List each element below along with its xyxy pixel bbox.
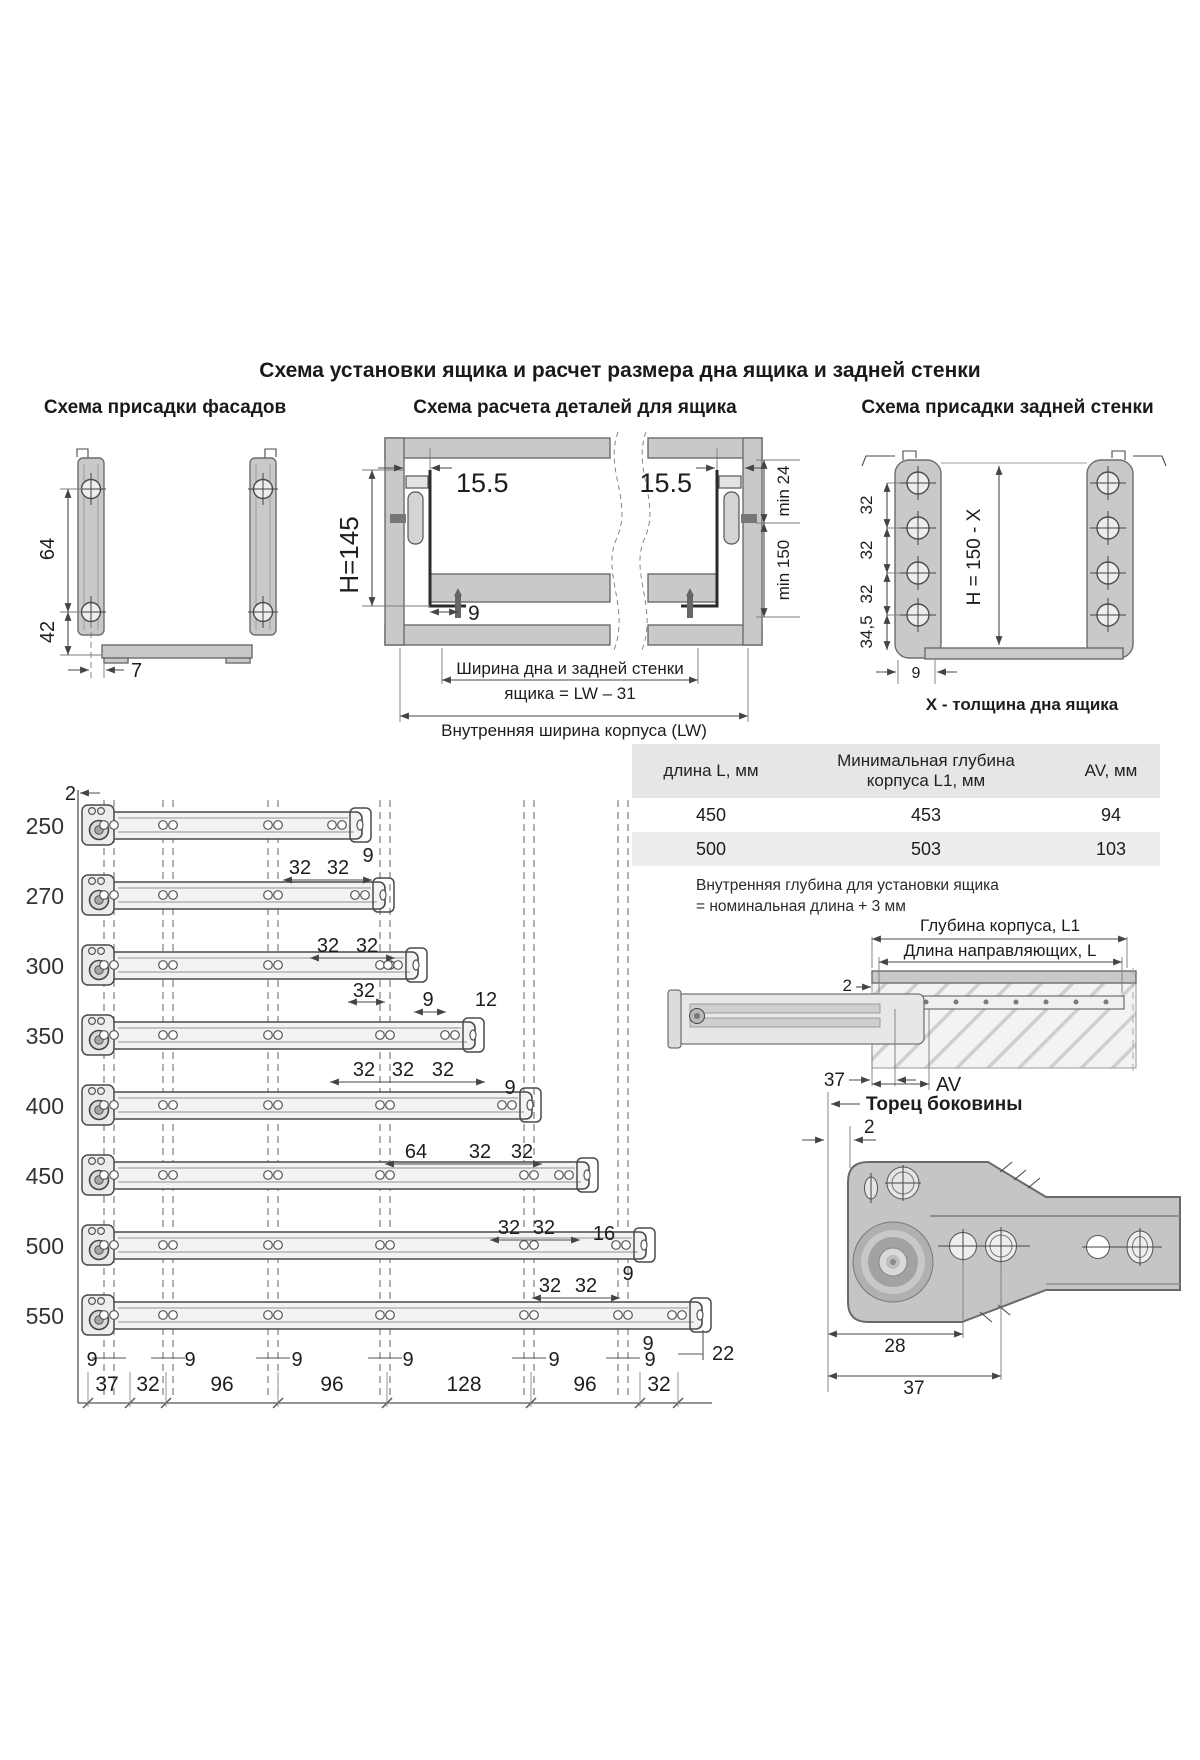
facade-diagram: 64 42 7	[37, 449, 278, 682]
dim-label-37: 37	[903, 1378, 924, 1399]
rail-length-label: 300	[26, 953, 64, 979]
dim-label-2: 2	[65, 783, 76, 805]
bottom-dim-label: 128	[446, 1373, 481, 1396]
hole-pitch-label: 9	[548, 1349, 559, 1371]
diagram-layer: 64 42 7	[0, 0, 1200, 1760]
screw-icon	[76, 473, 278, 628]
rail-dim: 9	[422, 989, 433, 1011]
page: Схема установки ящика и расчет размера д…	[0, 0, 1200, 1760]
rail-dim: 32	[392, 1059, 414, 1081]
bottom-dim-label: 32	[647, 1373, 670, 1396]
rail-dim: 32	[327, 857, 349, 879]
dim-label-7: 7	[131, 660, 142, 682]
cabinet-bottom-band	[385, 625, 610, 645]
rail-dim: 32	[575, 1275, 597, 1297]
rails-geometry	[78, 790, 712, 1408]
rail-dim: 32	[469, 1141, 491, 1163]
lw-label: Внутренняя ширина корпуса (LW)	[441, 721, 707, 740]
drawer-front-cap	[668, 990, 681, 1048]
bottom-width-label-line1: Ширина дна и задней стенки	[456, 659, 683, 678]
end-view-diagram: Торец боковины 2	[802, 1092, 1180, 1399]
dim-label-15-5-right: 15.5	[639, 468, 692, 498]
calc-details-diagram: H=145 15.5 15.5 9 min 24 min 150 Ширина …	[334, 432, 800, 740]
dim-label-min150: min 150	[774, 540, 793, 600]
rail-dim: 32	[353, 1059, 375, 1081]
bottom-dim-label: 37	[95, 1373, 118, 1396]
rail-dim: 9	[362, 845, 373, 867]
hole-pitch-label: 9	[402, 1349, 413, 1371]
dim-label-2: 2	[864, 1117, 875, 1138]
rail-length-label: 270	[26, 883, 64, 909]
rail-dim: 9	[622, 1263, 633, 1285]
dim-label-37: 37	[824, 1070, 845, 1091]
rail-length-label: 450	[26, 1163, 64, 1189]
dim-label-32: 32	[857, 585, 876, 604]
screw-icon	[390, 514, 406, 523]
rail-dim: 32	[533, 1217, 555, 1239]
bottom-width-label-line2: ящика = LW – 31	[504, 684, 635, 703]
dim-label-h145: H=145	[334, 516, 364, 593]
hole-pitch-label: 9	[291, 1349, 302, 1371]
bottom-dim-label: 96	[320, 1373, 343, 1396]
cabinet-depth-label: Глубина корпуса, L1	[920, 916, 1080, 935]
back-wall-caption: X - толщина дна ящика	[926, 695, 1119, 714]
back-bottom-bar	[925, 648, 1123, 659]
rail-dim: 32	[356, 935, 378, 957]
bottom-dim-label: 32	[136, 1373, 159, 1396]
bottom-dim-label: 96	[210, 1373, 233, 1396]
hole-pitch-label: 9	[644, 1349, 655, 1371]
rail-dim: 16	[593, 1223, 615, 1245]
dim-label-15-5-left: 15.5	[456, 468, 509, 498]
dim-label-32: 32	[857, 541, 876, 560]
end-view-title: Торец боковины	[866, 1094, 1022, 1115]
dim-label-2: 2	[843, 976, 852, 995]
rail-dim: 32	[289, 857, 311, 879]
hook-icon	[862, 456, 895, 466]
hole-pitch-label: 9	[184, 1349, 195, 1371]
dim-label-av: AV	[936, 1074, 962, 1096]
back-wall-diagram: 32 32 32 34,5 H = 150 - X 9 X - толщина …	[857, 451, 1166, 714]
cabinet-left-wall	[385, 438, 404, 645]
rail-dim: 32	[498, 1217, 520, 1239]
rail-dim: 32	[317, 935, 339, 957]
rail-dim: 32	[539, 1275, 561, 1297]
roller-wheel-icon	[853, 1222, 933, 1302]
break-line-icon	[640, 432, 650, 650]
rail-dim: 64	[405, 1141, 427, 1163]
rail-length-label: 250	[26, 813, 64, 839]
rail-dim: 9	[504, 1077, 515, 1099]
rail-dim: 22	[712, 1343, 734, 1365]
rail-dim: 32	[511, 1141, 533, 1163]
break-line-icon	[612, 432, 622, 650]
rail-dim: 32	[432, 1059, 454, 1081]
dim-label-42: 42	[37, 621, 59, 643]
rail-length-label: 500	[26, 1233, 64, 1259]
rail-dim: 32	[353, 980, 375, 1002]
screw-icon	[741, 514, 757, 523]
side-view-diagram: Глубина корпуса, L1 Длина направляющих, …	[668, 916, 1136, 1096]
hole-pitch-label: 9	[86, 1349, 97, 1371]
rail-dim: 12	[475, 989, 497, 1011]
rail-length-label: Длина направляющих, L	[904, 941, 1097, 960]
dim-label-28: 28	[884, 1336, 905, 1357]
facade-bottom-plate	[102, 645, 252, 658]
dim-label-32: 32	[857, 496, 876, 515]
dim-label-h150x: H = 150 - X	[964, 508, 985, 605]
cabinet-right-wall	[743, 438, 762, 645]
rail-length-label: 400	[26, 1093, 64, 1119]
cabinet-top-band	[385, 438, 610, 458]
dim-label-min24: min 24	[774, 465, 793, 516]
dim-label-34-5: 34,5	[857, 615, 876, 648]
hook-icon	[1112, 451, 1125, 460]
hook-icon	[903, 451, 916, 460]
hook-icon	[1133, 456, 1166, 466]
rail-length-label: 550	[26, 1303, 64, 1329]
dim-label-9: 9	[468, 602, 480, 625]
rail-length-label: 350	[26, 1023, 64, 1049]
dim-label-64: 64	[37, 538, 59, 560]
bottom-dim-label: 96	[573, 1373, 596, 1396]
dim-label-9: 9	[912, 665, 921, 682]
